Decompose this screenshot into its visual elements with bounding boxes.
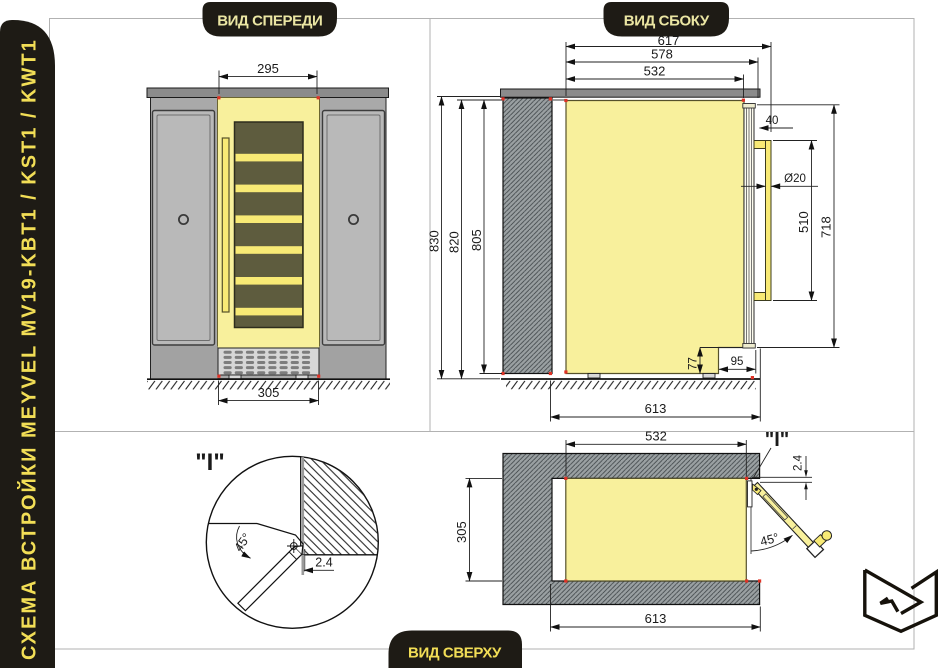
svg-text:ВИД СПЕРЕДИ: ВИД СПЕРЕДИ bbox=[217, 13, 322, 30]
svg-text:СХЕМА ВСТРОЙКИ MEYVEL MV19-KBT: СХЕМА ВСТРОЙКИ MEYVEL MV19-KBT1 / KST1 /… bbox=[17, 38, 41, 660]
svg-text:830: 830 bbox=[426, 230, 441, 252]
svg-text:295: 295 bbox=[257, 61, 279, 76]
svg-text:"I": "I" bbox=[765, 429, 790, 451]
svg-text:532: 532 bbox=[644, 63, 666, 78]
svg-text:578: 578 bbox=[651, 46, 673, 61]
svg-text:77: 77 bbox=[688, 357, 700, 370]
svg-text:2.4: 2.4 bbox=[315, 556, 332, 570]
svg-text:ВИД СБОКУ: ВИД СБОКУ bbox=[624, 13, 710, 30]
svg-text:95: 95 bbox=[731, 356, 744, 368]
svg-text:305: 305 bbox=[258, 385, 280, 400]
svg-text:40: 40 bbox=[766, 115, 779, 127]
svg-text:305: 305 bbox=[454, 521, 469, 543]
svg-text:613: 613 bbox=[645, 401, 667, 416]
svg-text:ВИД СВЕРХУ: ВИД СВЕРХУ bbox=[408, 645, 502, 662]
svg-text:820: 820 bbox=[446, 231, 461, 253]
svg-text:805: 805 bbox=[469, 229, 484, 251]
svg-text:532: 532 bbox=[645, 429, 667, 444]
svg-text:Ø20: Ø20 bbox=[784, 173, 806, 185]
svg-text:718: 718 bbox=[819, 216, 834, 238]
svg-text:510: 510 bbox=[796, 211, 811, 233]
svg-text:2.4: 2.4 bbox=[793, 454, 805, 471]
svg-text:"I": "I" bbox=[195, 449, 224, 476]
svg-text:613: 613 bbox=[645, 611, 667, 626]
